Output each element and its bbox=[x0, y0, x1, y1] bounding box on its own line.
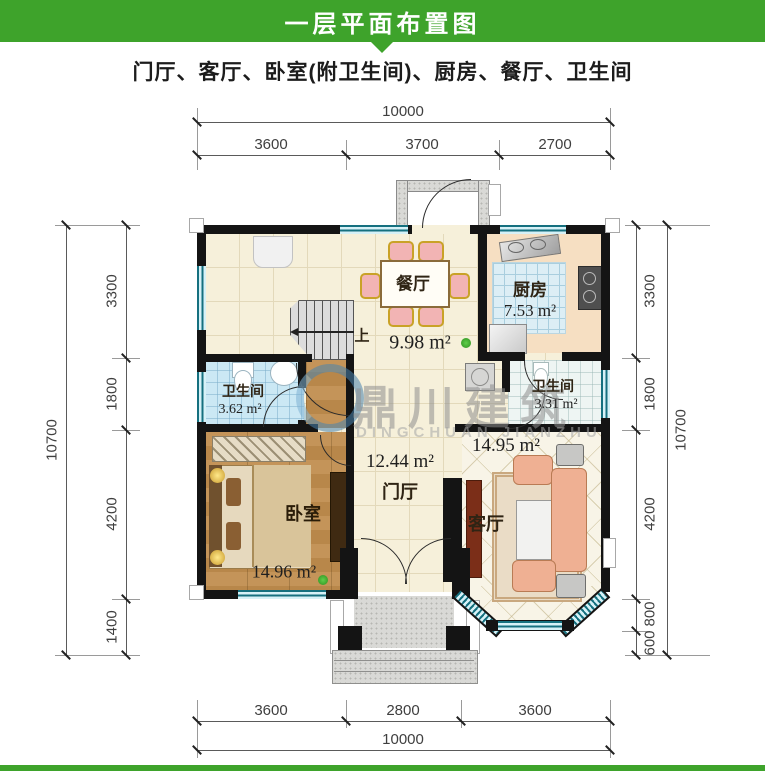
dim-bottom-seg: 3600 bbox=[254, 702, 287, 719]
window-dining-left bbox=[197, 266, 206, 330]
end-table bbox=[556, 444, 584, 466]
window-living-right bbox=[603, 538, 616, 568]
extension-line bbox=[197, 108, 198, 170]
dim-line-left-total bbox=[66, 225, 67, 655]
dim-right-seg: 800 bbox=[642, 601, 659, 626]
label-kitchen: 厨房 bbox=[513, 276, 547, 301]
porch-step-line bbox=[334, 671, 474, 672]
dining-chair bbox=[449, 273, 470, 299]
label-foyer: 门厅 bbox=[382, 478, 418, 504]
area-foyer: 12.44 m² bbox=[366, 451, 434, 473]
dim-line-top-segments bbox=[197, 155, 610, 156]
dim-left-seg: 3300 bbox=[104, 274, 121, 307]
washbasin-left-bath bbox=[270, 360, 298, 386]
dim-top-seg: 2700 bbox=[538, 136, 571, 153]
wall-mid-left bbox=[197, 354, 312, 362]
bedside-lamp bbox=[210, 468, 225, 483]
dim-right-seg: 1800 bbox=[642, 377, 659, 410]
dim-right-seg: 3300 bbox=[642, 274, 659, 307]
area-dining: 9.98 m² bbox=[389, 332, 451, 355]
potted-plant bbox=[461, 338, 471, 348]
footer-bar bbox=[0, 765, 765, 771]
dim-line-bottom-total bbox=[197, 750, 610, 751]
room-list-subtitle: 门厅、客厅、卧室(附卫生间)、厨房、餐厅、卫生间 bbox=[0, 56, 765, 86]
stove-burner bbox=[583, 272, 596, 285]
window-dining-top bbox=[340, 225, 408, 234]
dim-right-seg: 4200 bbox=[642, 497, 659, 530]
dim-right-seg: 600 bbox=[642, 630, 659, 655]
dim-top-seg: 3700 bbox=[405, 136, 438, 153]
dining-chair bbox=[418, 241, 444, 262]
stairs-arrow-line bbox=[296, 331, 354, 333]
area-living: 14.95 m² bbox=[472, 435, 540, 457]
bedside-lamp bbox=[210, 550, 225, 565]
bedroom-closet bbox=[212, 436, 306, 462]
kitchen-fridge bbox=[489, 324, 527, 354]
wall-kitchen-bottom bbox=[562, 352, 610, 361]
porch-steps bbox=[332, 650, 478, 684]
dim-line-left-segments bbox=[126, 225, 127, 655]
bay-window-front bbox=[498, 621, 562, 630]
dim-line-top-total bbox=[197, 122, 610, 123]
armchair-top bbox=[513, 455, 553, 485]
dim-top-total: 10000 bbox=[382, 103, 424, 120]
dining-chair bbox=[360, 273, 381, 299]
dim-left-seg: 4200 bbox=[104, 497, 121, 530]
label-bedroom: 卧室 bbox=[285, 500, 321, 526]
header-notch bbox=[371, 42, 393, 53]
corner-pilaster bbox=[189, 218, 204, 233]
corner-pilaster bbox=[189, 585, 204, 600]
dim-left-total: 10700 bbox=[44, 419, 61, 461]
label-dining: 餐厅 bbox=[396, 270, 430, 295]
porch-column-right bbox=[446, 626, 470, 650]
window-bath-right bbox=[601, 370, 610, 418]
dining-chair bbox=[418, 306, 444, 327]
rear-porch-step bbox=[488, 184, 501, 216]
dim-left-seg: 1800 bbox=[104, 377, 121, 410]
end-table bbox=[556, 574, 586, 598]
dim-line-right-total bbox=[667, 225, 668, 655]
dim-line-bottom-segments bbox=[197, 721, 610, 722]
extension-line bbox=[610, 108, 611, 170]
kitchen-sink-bowl bbox=[508, 242, 524, 253]
area-bath-right: 3.31 m² bbox=[534, 397, 577, 413]
dining-cabinet bbox=[253, 236, 293, 268]
label-bath-left: 卫生间 bbox=[222, 381, 264, 401]
page-title: 一层平面布置图 bbox=[285, 4, 481, 39]
pillow bbox=[226, 478, 241, 506]
pillow bbox=[226, 522, 241, 550]
potted-plant bbox=[318, 575, 328, 585]
dim-right-total: 10700 bbox=[673, 409, 690, 451]
dim-bottom-seg: 2800 bbox=[386, 702, 419, 719]
stairs-up-label: 上 bbox=[354, 325, 369, 346]
sofa-main bbox=[551, 468, 587, 572]
armchair-bottom bbox=[512, 560, 556, 592]
dim-bottom-total: 10000 bbox=[382, 731, 424, 748]
window-kitchen-top bbox=[500, 225, 566, 234]
area-kitchen: 7.53 m² bbox=[504, 301, 556, 321]
dim-left-seg: 1400 bbox=[104, 610, 121, 643]
floor-plan-page: 一层平面布置图 门厅、客厅、卧室(附卫生间)、厨房、餐厅、卫生间 bbox=[0, 0, 765, 771]
front-porch-floor bbox=[354, 596, 454, 648]
stove-burner bbox=[583, 290, 596, 303]
porch-step-line bbox=[334, 660, 474, 661]
wall-kitchen-left bbox=[478, 225, 487, 361]
dim-line-right-segments bbox=[636, 225, 637, 655]
window-bath-left bbox=[197, 372, 206, 422]
dining-chair bbox=[388, 306, 414, 327]
label-living: 客厅 bbox=[468, 510, 504, 536]
dim-top-seg: 3600 bbox=[254, 136, 287, 153]
dining-chair bbox=[388, 241, 414, 262]
header-bar: 一层平面布置图 bbox=[0, 0, 765, 42]
window-bedroom-bottom bbox=[238, 590, 326, 599]
corner-pilaster bbox=[605, 218, 620, 233]
stairs-arrow-head bbox=[290, 328, 298, 336]
dim-bottom-seg: 3600 bbox=[518, 702, 551, 719]
label-bath-right: 卫生间 bbox=[532, 376, 574, 396]
area-bath-left: 3.62 m² bbox=[218, 402, 261, 418]
coffee-table bbox=[516, 500, 552, 560]
kitchen-sink-bowl bbox=[530, 239, 546, 250]
porch-column-left bbox=[338, 626, 362, 650]
area-bedroom: 14.96 m² bbox=[252, 562, 316, 583]
wall-entry-stub-left bbox=[340, 548, 358, 599]
rear-porch-wall bbox=[396, 180, 408, 227]
